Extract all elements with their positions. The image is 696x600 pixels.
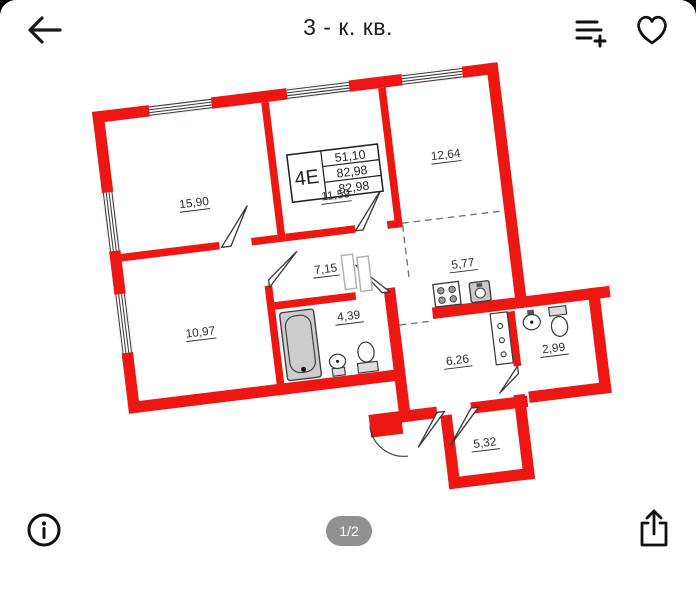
add-to-list-button[interactable]	[571, 12, 609, 50]
room-area-label: 2,99	[541, 340, 566, 357]
room-area-label: 6,26	[445, 351, 470, 368]
info-icon	[24, 510, 64, 550]
share-icon	[636, 507, 672, 549]
door-frame-icon	[341, 252, 372, 293]
info-button[interactable]	[24, 510, 64, 550]
room-area-label: 7,15	[313, 260, 338, 277]
room-area-label: 5,32	[473, 434, 498, 451]
add-to-list-icon	[571, 12, 609, 50]
wc-sink-icon	[522, 309, 541, 331]
wc-toilet-icon	[549, 306, 570, 338]
unit-type-label: 4Е	[293, 166, 320, 191]
kitchen-sink-icon	[469, 281, 491, 303]
sink-icon	[329, 353, 348, 376]
room-area-label: 5,77	[451, 255, 476, 272]
window-icon	[92, 67, 491, 354]
page-indicator-text: 1/2	[339, 523, 358, 539]
favorite-heart-icon	[632, 10, 672, 50]
stove-icon	[433, 281, 461, 307]
favorite-button[interactable]	[632, 10, 672, 50]
room-area-label: 4,39	[336, 307, 361, 324]
bathtub-icon	[279, 309, 321, 381]
share-button[interactable]	[634, 506, 674, 550]
floor-plan-viewer-screen: 4Е 51,10 82,98 82,98 15,90 11,59 12,64 7…	[0, 0, 696, 600]
toilet-icon	[355, 341, 378, 373]
top-bar: 3 - к. кв.	[0, 0, 696, 58]
page-indicator: 1/2	[326, 516, 372, 546]
bottom-bar: 1/2	[0, 498, 696, 600]
